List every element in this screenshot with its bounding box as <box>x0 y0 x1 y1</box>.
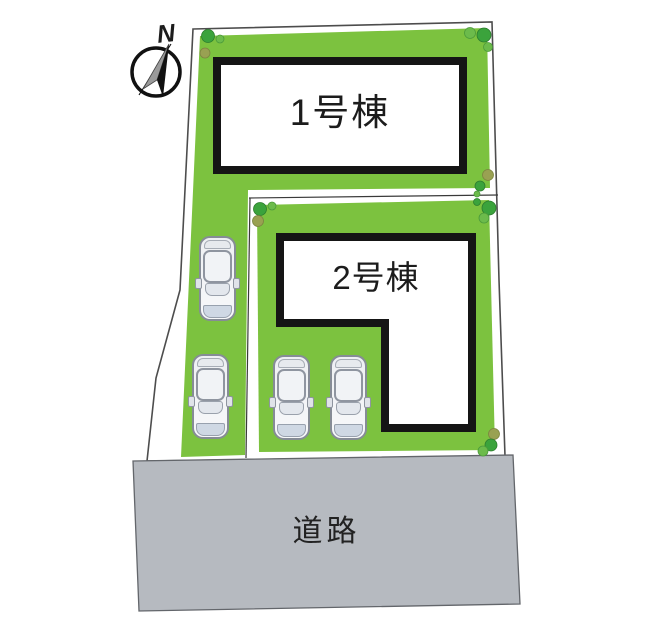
parked-car <box>192 354 229 439</box>
car-rear-bumper <box>335 359 362 368</box>
parked-car <box>330 355 367 440</box>
car-mirror-right <box>307 397 314 408</box>
car-mirror-right <box>233 278 240 289</box>
car-front-bumper <box>203 305 232 318</box>
car-rear-bumper <box>204 240 231 249</box>
car-rear-bumper <box>197 358 224 367</box>
car-windshield <box>279 402 304 415</box>
site-plan: N 1号棟 2号棟 道路 <box>0 0 649 619</box>
car-front-bumper <box>277 424 306 437</box>
parked-car <box>199 236 236 321</box>
car-windshield <box>205 283 230 296</box>
car-cabin-roof <box>196 368 225 401</box>
car-mirror-left <box>269 397 276 408</box>
car-front-bumper <box>334 424 363 437</box>
compass-icon <box>132 44 180 97</box>
car-front-bumper <box>196 423 225 436</box>
car-cabin-roof <box>277 369 306 402</box>
road-label: 道路 <box>140 458 513 605</box>
parked-car <box>273 355 310 440</box>
car-rear-bumper <box>278 359 305 368</box>
car-mirror-left <box>195 278 202 289</box>
car-mirror-right <box>364 397 371 408</box>
car-mirror-left <box>326 397 333 408</box>
car-mirror-right <box>226 396 233 407</box>
building-1-label: 1号棟 <box>217 59 463 166</box>
car-cabin-roof <box>203 250 232 283</box>
car-windshield <box>336 402 361 415</box>
building-2-label: 2号棟 <box>284 239 468 315</box>
car-windshield <box>198 401 223 414</box>
car-mirror-left <box>188 396 195 407</box>
car-cabin-roof <box>334 369 363 402</box>
compass-north-label: N <box>144 16 187 52</box>
